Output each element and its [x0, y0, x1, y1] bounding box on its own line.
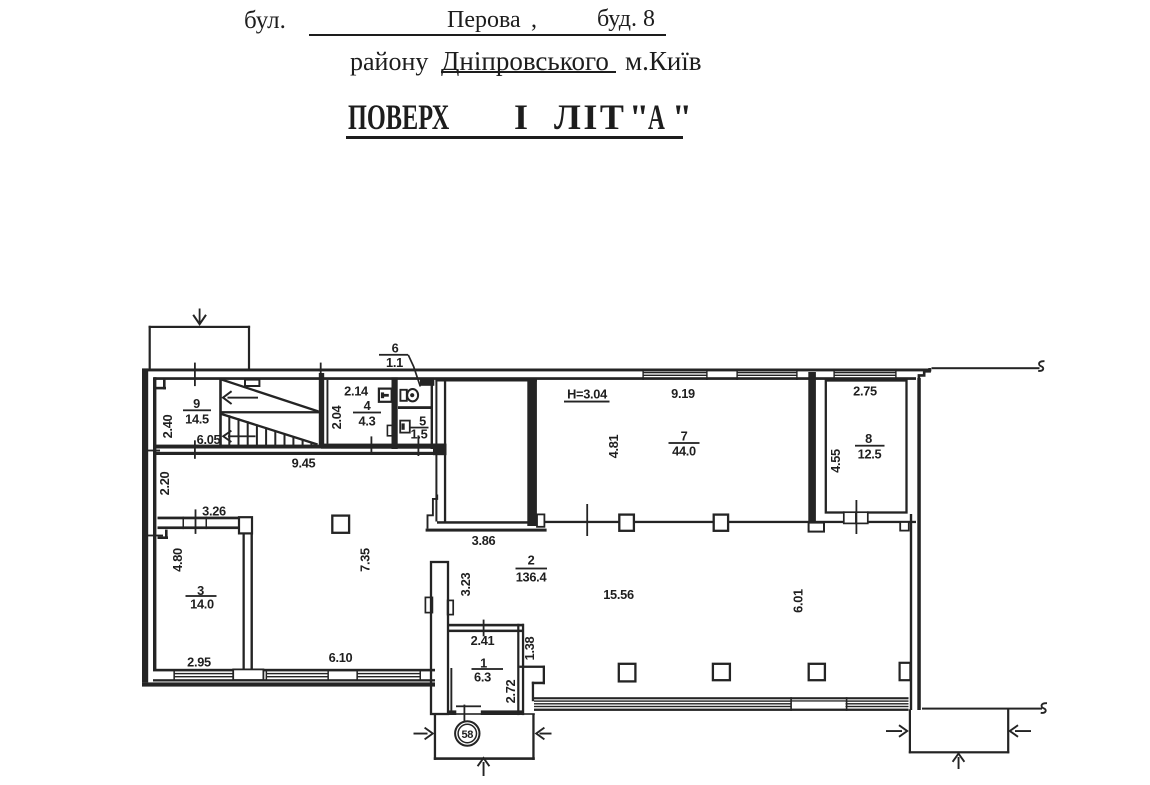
svg-text:2.72: 2.72: [503, 679, 518, 703]
svg-text:3.26: 3.26: [202, 504, 226, 519]
svg-text:7: 7: [681, 429, 688, 444]
svg-text:58: 58: [461, 729, 473, 741]
svg-text:6.10: 6.10: [329, 650, 353, 665]
svg-text:3.23: 3.23: [458, 572, 473, 596]
svg-text:2: 2: [528, 553, 535, 568]
svg-text:9: 9: [193, 396, 200, 411]
svg-text:7.35: 7.35: [358, 548, 373, 572]
svg-text:4.55: 4.55: [828, 449, 843, 473]
svg-text:8: 8: [865, 431, 872, 446]
svg-text:6: 6: [392, 341, 399, 356]
svg-text:4.3: 4.3: [359, 414, 376, 429]
svg-text:14.5: 14.5: [185, 412, 209, 427]
svg-text:44.0: 44.0: [672, 444, 696, 459]
svg-text:2.40: 2.40: [160, 414, 175, 438]
svg-text:2.75: 2.75: [853, 384, 877, 399]
svg-text:2.14: 2.14: [344, 384, 369, 399]
svg-text:4.81: 4.81: [606, 434, 621, 458]
svg-text:4.80: 4.80: [170, 548, 185, 572]
svg-text:12.5: 12.5: [858, 447, 882, 462]
svg-text:6.3: 6.3: [474, 670, 491, 685]
svg-text:2.95: 2.95: [187, 655, 211, 670]
svg-text:9.45: 9.45: [292, 456, 316, 471]
svg-text:3.86: 3.86: [472, 533, 496, 548]
svg-text:1.38: 1.38: [522, 636, 537, 660]
svg-text:6.01: 6.01: [791, 589, 806, 613]
svg-text:2.41: 2.41: [471, 633, 495, 648]
svg-text:2.20: 2.20: [157, 471, 172, 495]
svg-text:15.56: 15.56: [603, 587, 634, 602]
svg-text:4: 4: [364, 398, 372, 413]
svg-text:14.0: 14.0: [190, 597, 214, 612]
svg-text:H=3.04: H=3.04: [567, 387, 608, 402]
svg-text:136.4: 136.4: [516, 570, 548, 585]
svg-text:1.1: 1.1: [386, 355, 403, 370]
svg-text:2.04: 2.04: [329, 404, 344, 429]
svg-text:9.19: 9.19: [671, 386, 695, 401]
